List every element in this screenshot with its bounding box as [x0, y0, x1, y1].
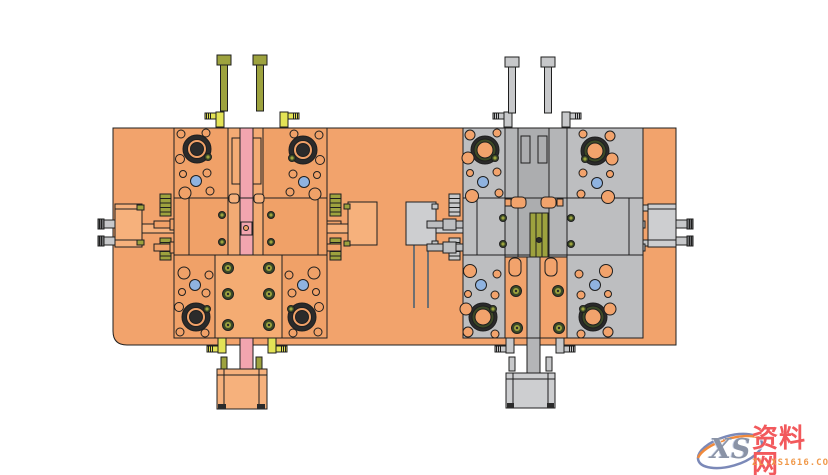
latch-clip [137, 240, 144, 245]
latch-tab [505, 199, 511, 206]
spring-plug [449, 194, 460, 216]
center-stem [527, 257, 540, 338]
water-fitting [493, 112, 512, 127]
block-foot [218, 404, 226, 409]
small-socket-screw [268, 239, 275, 246]
water-fitting [205, 112, 224, 127]
latch-arm [327, 224, 348, 233]
cap-screw-grey [541, 57, 555, 113]
watermark-logo-text: XS [710, 434, 750, 465]
water-fitting [562, 112, 581, 127]
latch-clip [344, 241, 350, 246]
watermark-url: ZL.XS1616.COM [752, 458, 828, 468]
latch-tab [254, 194, 264, 203]
latch-screw [98, 219, 115, 229]
latch-block-right [648, 204, 676, 247]
block-foot [507, 403, 514, 408]
latch-clip [137, 205, 144, 210]
latch-clip [344, 204, 350, 209]
latch-tab [557, 199, 563, 206]
center-stem [527, 338, 540, 373]
block-foot [547, 403, 554, 408]
small-socket-screw [219, 239, 226, 246]
latch-screw [98, 236, 115, 246]
spring-plug [330, 194, 341, 216]
latch-clip [432, 204, 438, 209]
mold-assembly-drawing [0, 0, 828, 475]
latch-block-inner [348, 202, 377, 245]
water-fitting [280, 112, 299, 127]
block-foot [257, 404, 265, 409]
latch-tab [511, 197, 526, 208]
center-hole [244, 226, 249, 231]
support-pin [221, 357, 227, 370]
latch-screw [676, 219, 693, 229]
spring-plug [160, 194, 171, 216]
center-gib-olive [530, 213, 548, 257]
support-pin [546, 357, 552, 371]
cap-screw-olive [253, 55, 267, 111]
support-pin [256, 357, 262, 370]
core-mold-half [406, 57, 693, 408]
cap-screw-olive [217, 55, 231, 111]
latch-tab [229, 194, 239, 203]
small-socket-screw [219, 212, 226, 219]
cavity-mold-half [98, 55, 377, 409]
center-hole [537, 238, 542, 243]
latch-tab [541, 197, 556, 208]
support-pin [509, 357, 515, 371]
sprue-stem [240, 338, 253, 370]
watermark: XS 资料网 ZL.XS1616.COM [686, 422, 828, 475]
small-socket-screw [268, 212, 275, 219]
cap-screw-grey [505, 57, 519, 113]
latch-screw [676, 236, 693, 246]
cad-viewport: XS 资料网 ZL.XS1616.COM [0, 0, 828, 475]
